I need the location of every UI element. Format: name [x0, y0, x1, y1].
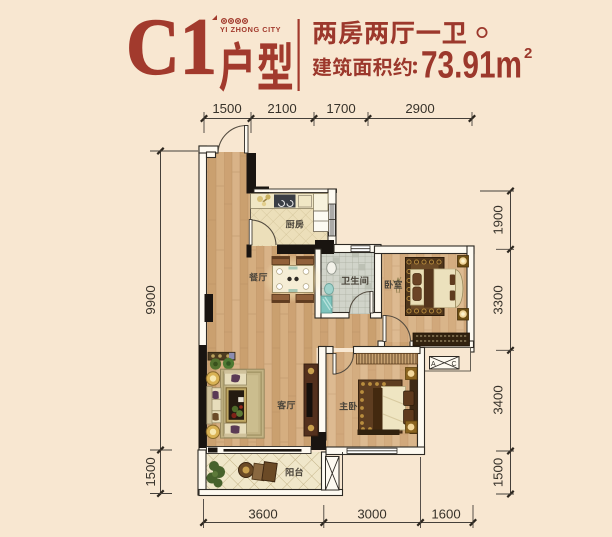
svg-text:1500: 1500 — [143, 457, 158, 486]
svg-text:1700: 1700 — [326, 101, 355, 116]
svg-text:C: C — [452, 361, 457, 368]
svg-text:2900: 2900 — [405, 101, 434, 116]
svg-text:YI ZHONG CITY: YI ZHONG CITY — [220, 25, 281, 34]
svg-text:2: 2 — [524, 45, 532, 62]
svg-text:A: A — [431, 361, 436, 368]
svg-text:1500: 1500 — [491, 458, 506, 487]
svg-text:C1: C1 — [126, 4, 217, 92]
svg-text:3000: 3000 — [357, 507, 386, 522]
svg-text:1500: 1500 — [212, 101, 241, 116]
svg-text:9900: 9900 — [143, 285, 158, 314]
svg-text:1600: 1600 — [431, 507, 460, 522]
svg-text:3300: 3300 — [491, 285, 506, 314]
svg-text:2100: 2100 — [267, 101, 296, 116]
svg-text:3600: 3600 — [248, 507, 277, 522]
svg-text:1900: 1900 — [491, 205, 506, 234]
svg-text:3400: 3400 — [491, 385, 506, 414]
svg-text:73.91m: 73.91m — [421, 45, 522, 87]
